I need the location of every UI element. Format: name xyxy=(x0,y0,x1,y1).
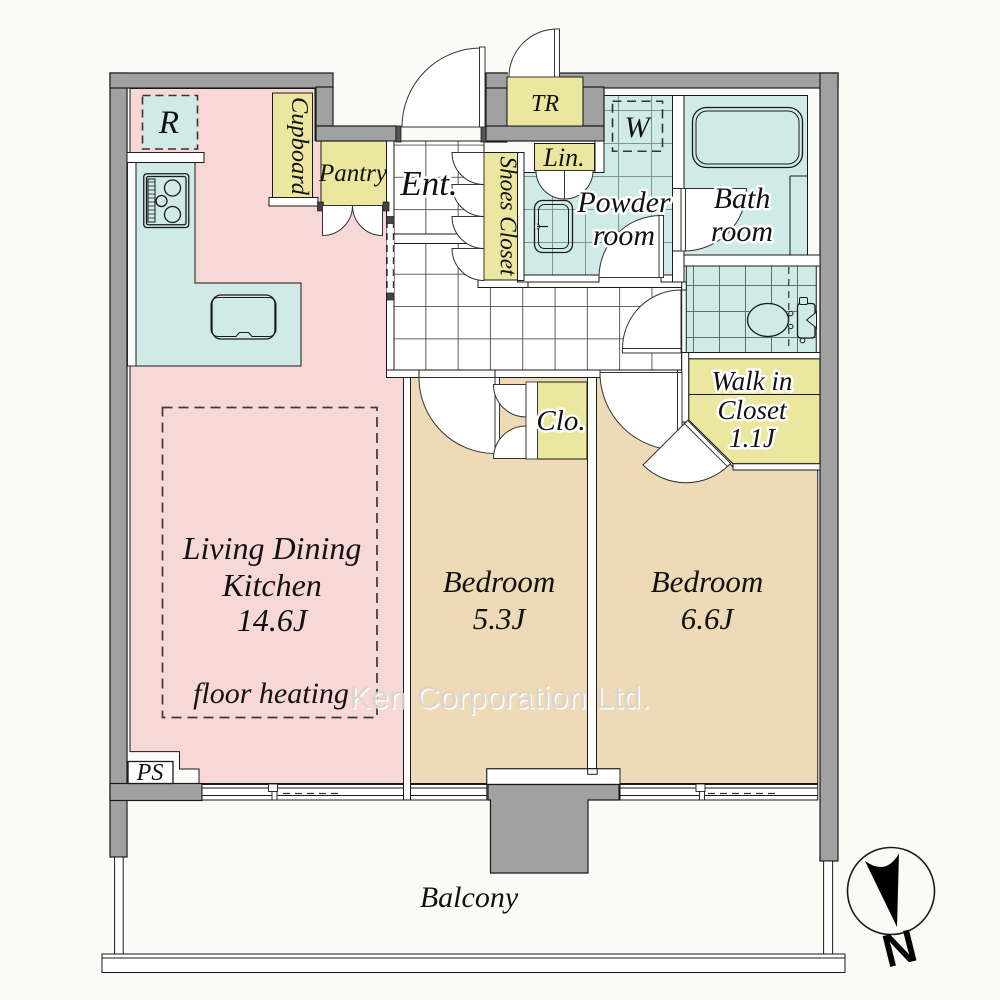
svg-text:Ent.: Ent. xyxy=(399,164,457,203)
svg-text:Walk in: Walk in xyxy=(712,366,793,396)
svg-text:1.1J: 1.1J xyxy=(729,423,777,453)
svg-text:Lin.: Lin. xyxy=(542,143,584,172)
svg-text:Bedroom: Bedroom xyxy=(651,564,764,599)
svg-text:Cupboard: Cupboard xyxy=(286,97,313,196)
svg-text:Bedroom: Bedroom xyxy=(443,564,556,599)
svg-text:R: R xyxy=(158,105,179,141)
svg-text:Shoes Closet: Shoes Closet xyxy=(495,157,522,277)
svg-text:Pantry: Pantry xyxy=(318,160,388,187)
svg-text:PS: PS xyxy=(136,760,164,786)
svg-text:room: room xyxy=(593,219,655,252)
svg-text:TR: TR xyxy=(531,91,559,117)
svg-text:5.3J: 5.3J xyxy=(473,601,527,636)
svg-text:6.6J: 6.6J xyxy=(681,601,735,636)
svg-text:Balcony: Balcony xyxy=(420,881,519,914)
svg-text:room: room xyxy=(711,215,773,248)
svg-text:Closet: Closet xyxy=(717,395,788,425)
svg-text:Bath: Bath xyxy=(714,182,771,215)
svg-text:14.6J: 14.6J xyxy=(237,602,309,638)
svg-text:Kitchen: Kitchen xyxy=(221,567,322,603)
svg-text:Clo.: Clo. xyxy=(536,405,585,437)
svg-text:Ken Corporation Ltd.: Ken Corporation Ltd. xyxy=(350,679,651,715)
svg-text:W: W xyxy=(625,111,653,144)
svg-text:Powder: Powder xyxy=(576,186,671,219)
svg-text:floor heating: floor heating xyxy=(193,677,349,710)
svg-text:Living Dining: Living Dining xyxy=(182,530,362,566)
